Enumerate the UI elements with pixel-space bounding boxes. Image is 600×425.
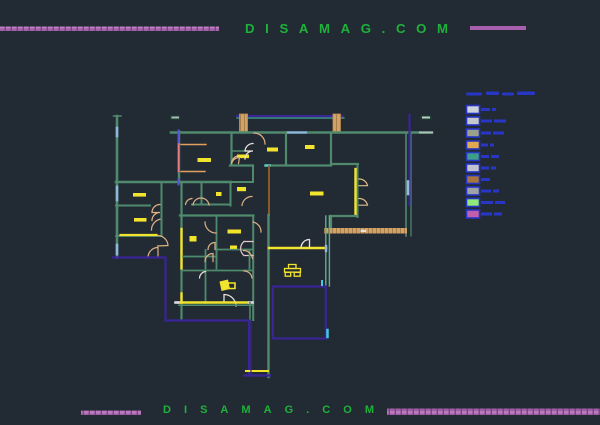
svg-text:DISAMAG.COM: DISAMAG.COM [245,21,448,36]
svg-text:DISAMAG.COM: DISAMAG.COM [163,404,374,416]
